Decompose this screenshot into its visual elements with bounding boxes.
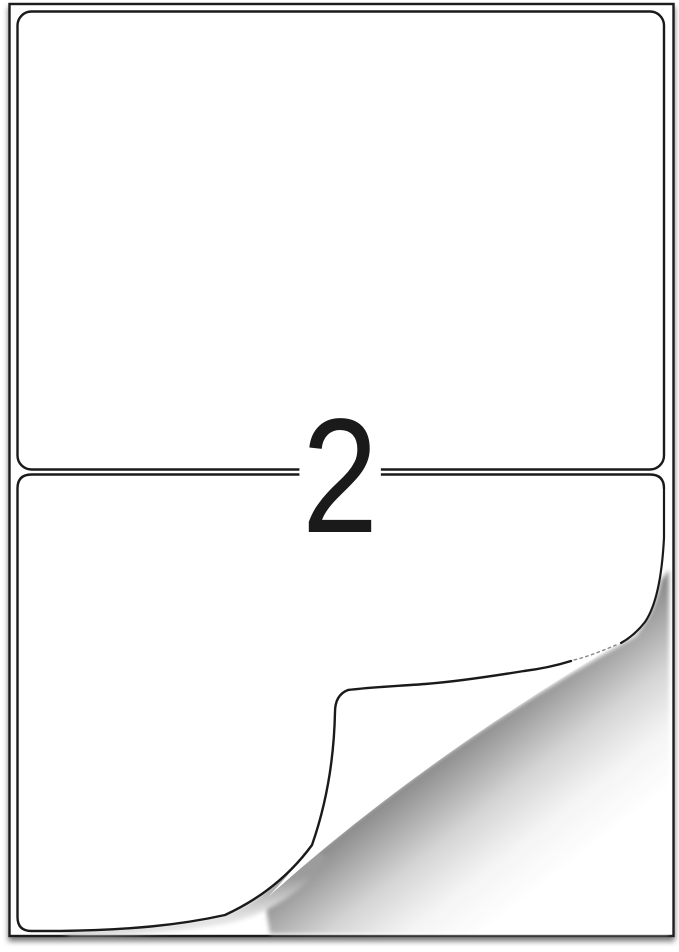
labels-per-sheet-count: 2 (299, 416, 380, 535)
label-sheet-product-image: 2 (0, 0, 679, 952)
